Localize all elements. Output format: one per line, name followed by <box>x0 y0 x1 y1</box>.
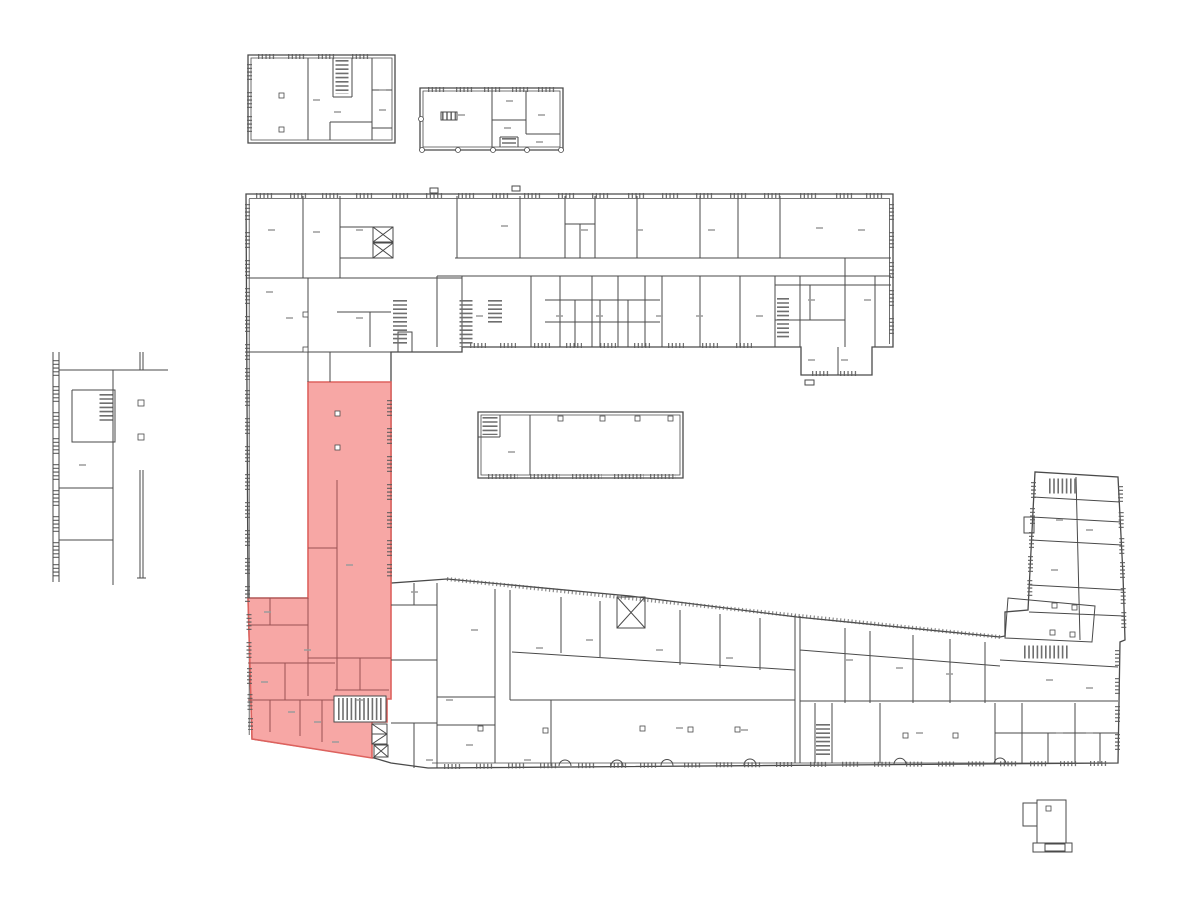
floor-plan-canvas <box>0 0 1200 904</box>
building-annex-north <box>419 88 564 153</box>
annex-nw-outline <box>248 55 395 143</box>
annex-se-column <box>1046 806 1051 811</box>
building-main-complex <box>246 194 1125 768</box>
building-annex-northwest <box>248 55 395 143</box>
fragment-west-walls <box>53 352 168 585</box>
building-annex-southeast <box>1023 800 1072 852</box>
hall-outline <box>478 412 683 478</box>
fragment-column <box>138 400 144 406</box>
floor-plan-page <box>0 0 1200 904</box>
building-hall-center <box>478 412 683 478</box>
building-fragment-west <box>53 352 168 585</box>
fragment-column <box>138 434 144 440</box>
